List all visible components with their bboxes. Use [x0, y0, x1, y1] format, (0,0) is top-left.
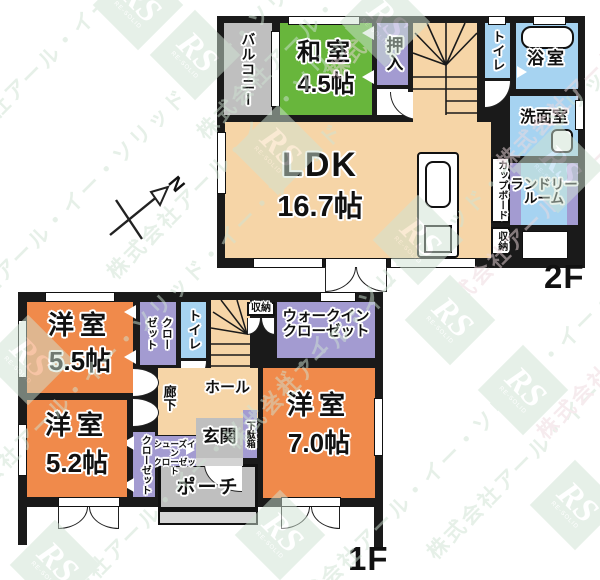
door-mark [186, 445, 195, 455]
door-arc [325, 267, 356, 292]
sliding-door-mark [362, 70, 374, 84]
ldk-size: 16.7帖 [240, 192, 400, 222]
window [488, 16, 506, 25]
genkan-step [196, 458, 243, 466]
toilet-1f-label: トイレ [187, 309, 201, 351]
bed70-size: 7.0帖 [263, 430, 375, 457]
hall-label: ホール [205, 380, 250, 396]
toilet-2f-label: トイレ [491, 30, 505, 72]
watermark-logo: RSRE-SOLID [478, 345, 569, 436]
room-balcony: バルコニー [224, 23, 272, 115]
watermark-logo: RSRE-SOLID [405, 275, 496, 366]
window [217, 132, 226, 194]
window [320, 292, 356, 302]
window [45, 292, 115, 302]
stairs-icon [413, 23, 477, 122]
bed55-size: 5.5帖 [29, 348, 131, 375]
stairs-icon [211, 300, 250, 368]
getabako: 下駄箱 [243, 410, 257, 458]
watermark-logo: RSRE-SOLID [93, 0, 184, 50]
door-arc [356, 267, 387, 292]
corridor-label: 廊下 [162, 385, 176, 411]
senmen-label: 洗面室 [510, 110, 578, 127]
sink-icon [551, 129, 573, 153]
door-sill [58, 497, 120, 507]
door-sill [281, 497, 341, 507]
watermark-logo: RSRE-SOLID [530, 460, 600, 551]
closet-55: クロー ゼット [140, 302, 176, 365]
door-arc [311, 507, 340, 529]
bed55-name: 洋室 [29, 312, 131, 339]
sliding-door-mark [124, 350, 136, 364]
ldk-name: LDK [240, 148, 400, 184]
bathtub-icon [521, 26, 574, 49]
f1-label: 1F [348, 540, 389, 578]
cupboard-label: カップボード [495, 160, 506, 220]
window [575, 100, 584, 130]
porch-step [158, 510, 258, 525]
washitsu-name: 和室 [282, 40, 370, 65]
balcony-label: バルコニー [241, 32, 256, 107]
wic-label: ウォークイン クローゼット [277, 310, 375, 340]
storage-2f-label: 収納 [495, 231, 506, 251]
storage-1f: 収納 [247, 302, 275, 316]
sliding-door-mark [124, 305, 136, 319]
bed52-name: 洋室 [27, 412, 127, 439]
floor-plan: バルコニー 和室 4.5帖 押入 トイレ 浴室 [0, 0, 600, 580]
north-compass-icon: N [60, 155, 190, 270]
door-arc [89, 507, 119, 529]
door-mark [517, 66, 527, 78]
cupboard: カップボード [491, 157, 510, 223]
window [288, 16, 360, 25]
window [271, 31, 280, 107]
north-label: N [164, 173, 189, 197]
window [374, 398, 383, 456]
window-bay [522, 231, 568, 259]
room-toilet-2f: トイレ [485, 23, 510, 78]
laundry-label: ランドリー ルーム [508, 178, 580, 206]
getabako-label: 下駄箱 [245, 421, 254, 448]
stairs-1f [211, 300, 250, 368]
bed70-name: 洋室 [263, 392, 375, 419]
closet-52-label: クローゼット [139, 435, 150, 495]
porch-label: ポーチ [160, 478, 256, 498]
kitchen-sink-icon [425, 161, 451, 208]
corridor-floor [158, 418, 196, 435]
closet-52: クローゼット [133, 432, 155, 497]
oshiire-label: 押入 [384, 36, 402, 72]
window [533, 16, 566, 25]
f2-label: 2F [544, 258, 585, 296]
sliding-door-mark [362, 26, 374, 40]
door-arc [58, 507, 88, 529]
bed52-size: 5.2帖 [27, 450, 127, 477]
door-arc [281, 507, 310, 529]
f1-wall-stub [18, 507, 27, 545]
genkan-label: 玄関 [196, 428, 243, 446]
room-oshiire: 押入 [377, 23, 408, 85]
storage-2f: 収納 [491, 227, 510, 255]
storage-1f-label: 収納 [251, 304, 271, 315]
washitsu-size: 4.5帖 [282, 72, 370, 97]
stairs-2f [413, 23, 477, 122]
closet-55-label: クロー ゼット [143, 317, 174, 350]
room-washitsu [280, 23, 372, 115]
kitchen-stove-icon [424, 225, 452, 253]
room-toilet-1f: トイレ [181, 302, 206, 358]
window [390, 258, 476, 268]
window [18, 424, 27, 476]
window [18, 320, 27, 378]
window [253, 258, 323, 268]
